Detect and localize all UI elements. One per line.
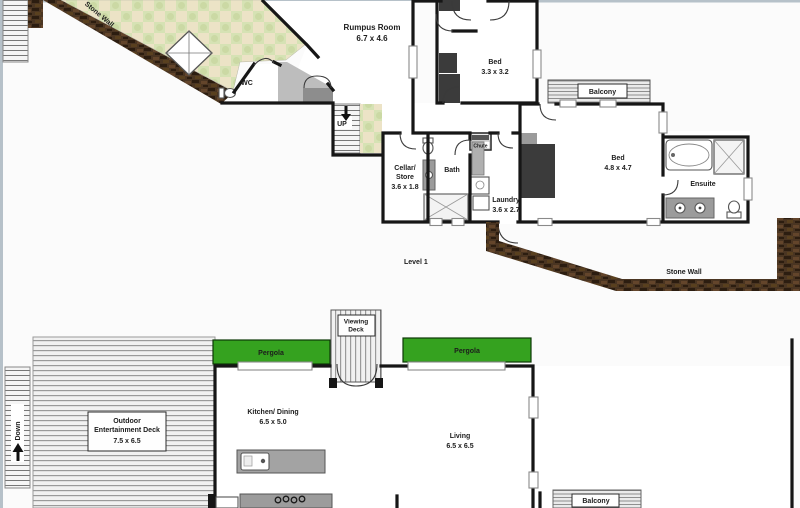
window-living-1	[529, 397, 538, 418]
bed-main-dims: 4.8 x 4.7	[604, 165, 631, 172]
window-rumpus	[409, 46, 417, 78]
exterior-stairs-top-left	[3, 0, 28, 62]
balcony-lower-label: Balcony	[582, 498, 609, 505]
stone-wall-lower-label: Stone Wall	[666, 269, 702, 276]
window-living-north	[408, 362, 505, 370]
kitchen-corner-wall	[208, 494, 216, 508]
stone-wall-top-segment	[28, 0, 43, 28]
deck-label-1: Outdoor	[113, 418, 141, 425]
window-bed-main-south-2	[647, 219, 660, 226]
level1-plan	[3, 0, 800, 291]
window-bed-main	[659, 112, 667, 133]
robe-bed-main	[521, 144, 555, 198]
pergola-right-label: Pergola	[454, 348, 480, 355]
cellar-label-2: Store	[396, 174, 414, 181]
kitchen-dims: 6.5 x 5.0	[259, 419, 286, 426]
rumpus-room-label: Rumpus Room	[344, 23, 401, 32]
deck-label-2: Entertainment Deck	[94, 427, 160, 434]
wc-label: WC	[241, 80, 253, 87]
ground-plan	[5, 310, 792, 508]
bed-small-dims: 3.3 x 3.2	[481, 69, 508, 76]
pergola-left-label: Pergola	[258, 350, 284, 357]
page-edge-left	[0, 0, 3, 508]
living-label: Living	[450, 433, 471, 440]
viewing-deck-label-2: Deck	[348, 327, 364, 334]
cellar-label-1: Cellar/	[394, 165, 415, 172]
down-label: Down	[15, 421, 22, 440]
floorplan-image: Stone Wall Rumpus Room 6.7 x 4.6 WC UP C…	[0, 0, 800, 508]
level1-label: Level 1	[404, 259, 428, 266]
stone-wall-lower-column	[777, 218, 800, 291]
robe-bed-small-1	[439, 53, 457, 73]
laundry-dims: 3.6 x 2.7	[492, 207, 519, 214]
living-kitchen-floor	[215, 366, 792, 508]
up-label: UP	[337, 121, 347, 128]
balcony-upper-label: Balcony	[589, 89, 616, 96]
cellar-dims: 3.6 x 1.8	[391, 184, 418, 191]
window-bed-main-south	[538, 219, 552, 226]
living-dims: 6.5 x 6.5	[446, 443, 473, 450]
kitchen-island	[237, 450, 325, 473]
window-ensuite	[744, 178, 752, 200]
kitchen-label: Kitchen/ Dining	[247, 409, 298, 416]
balcony-door-right	[600, 100, 616, 107]
bed-main-label: Bed	[611, 155, 624, 162]
viewing-deck-label-1: Viewing	[344, 319, 368, 326]
ensuite-label: Ensuite	[690, 181, 715, 188]
planter-strip	[360, 104, 382, 153]
floorplan-svg: Stone Wall Rumpus Room 6.7 x 4.6 WC UP C…	[0, 0, 800, 508]
laundry-label: Laundry	[492, 197, 520, 204]
rumpus-room-dims: 6.7 x 4.6	[356, 34, 388, 43]
window-bed-small	[533, 50, 541, 78]
deck-dims: 7.5 x 6.5	[113, 438, 140, 445]
window-kitchen	[238, 362, 312, 370]
window-bath-2	[452, 219, 464, 226]
window-bath	[430, 219, 442, 226]
window-living-2	[529, 472, 538, 488]
bed-small-label: Bed	[488, 59, 501, 66]
cupboard-bed-main	[521, 133, 537, 144]
bath-label: Bath	[444, 167, 460, 174]
balcony-door-left	[560, 100, 576, 107]
stone-wall-lower-band	[486, 222, 793, 291]
chute-label: Chute	[473, 144, 487, 150]
entry-mat	[303, 88, 333, 103]
